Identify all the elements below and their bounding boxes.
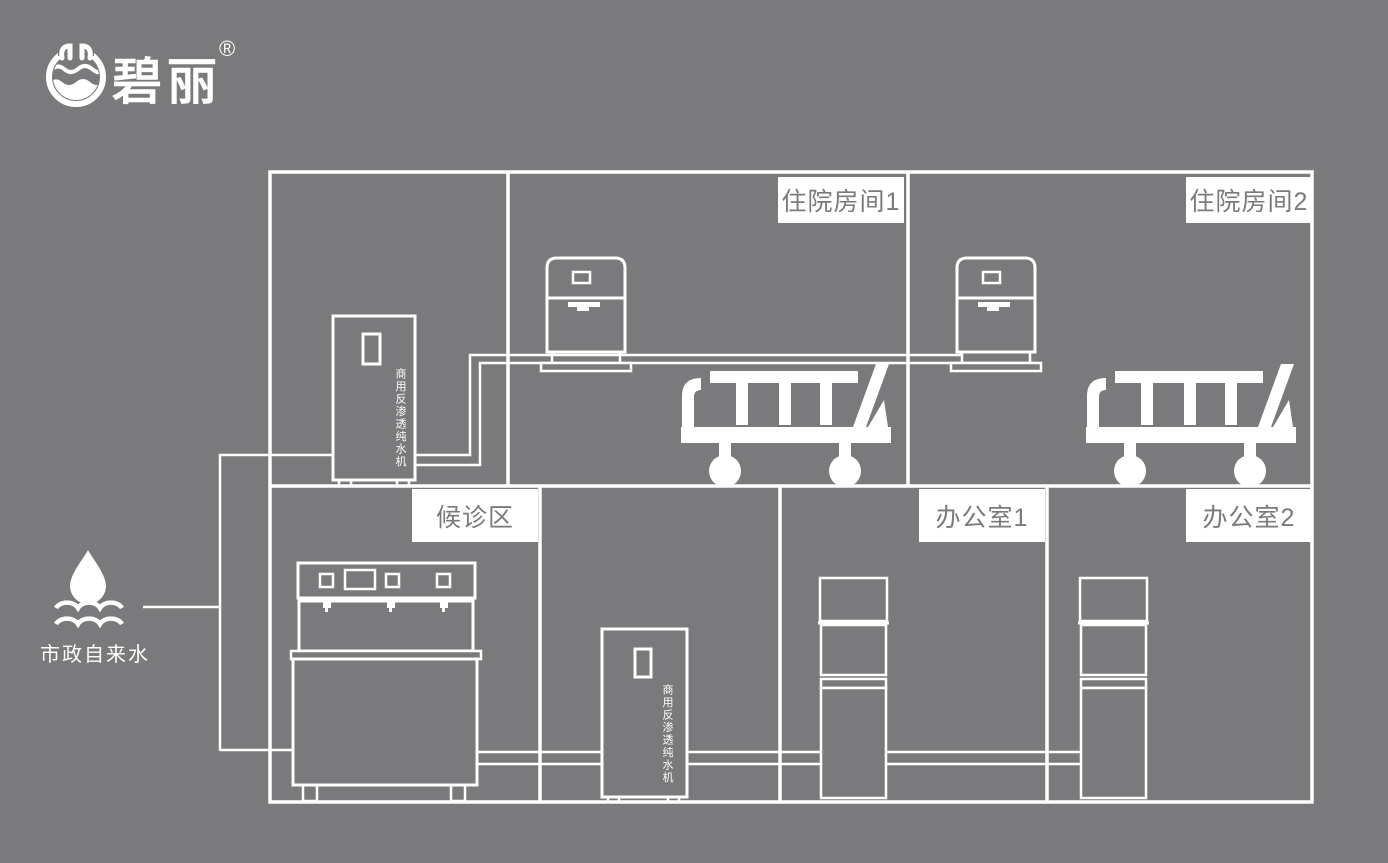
machine-foot (397, 480, 409, 486)
machine-foot (668, 797, 679, 802)
wall-dispenser-inpatient2 (951, 258, 1041, 371)
wave-icon (56, 603, 122, 608)
diagram-linework (0, 0, 1388, 863)
machine-foot (303, 785, 317, 801)
room-label-office1: 办公室1 (919, 489, 1045, 542)
ro-machine-upper-label: 商用反渗透纯水机 (392, 368, 408, 468)
office2-dispenser (1078, 578, 1149, 798)
logo-brand-text: 碧丽 (112, 42, 222, 114)
room-label-inpatient2: 住院房间2 (1186, 177, 1312, 223)
logo-water-icon (48, 44, 104, 104)
municipal-water-label: 市政自来水 (40, 638, 150, 667)
machine-foot (451, 785, 465, 801)
office1-dispenser (818, 578, 889, 798)
registered-trademark-symbol: ® (219, 36, 235, 62)
ro-machine-lower-label: 商用反渗透纯水机 (659, 684, 675, 784)
room-label-waiting-area: 候诊区 (412, 489, 538, 542)
machine-foot (339, 480, 351, 486)
waiting-area-dispenser (291, 563, 481, 801)
hospital-bed-inpatient2 (1086, 364, 1296, 487)
room-label-inpatient1: 住院房间1 (778, 177, 904, 223)
floorplan-diagram: 碧丽 ® 市政自来水 住院房间1 住院房间2 候诊区 办公室1 办公室2 商用反… (0, 0, 1388, 863)
machine-foot (608, 797, 619, 802)
hospital-bed-inpatient1 (681, 364, 891, 487)
room-label-office2: 办公室2 (1186, 489, 1312, 542)
water-drop-icon (70, 550, 106, 604)
municipal-water-icon (56, 550, 122, 624)
wave-icon (56, 619, 122, 624)
dispenser-cabinet (293, 659, 477, 785)
